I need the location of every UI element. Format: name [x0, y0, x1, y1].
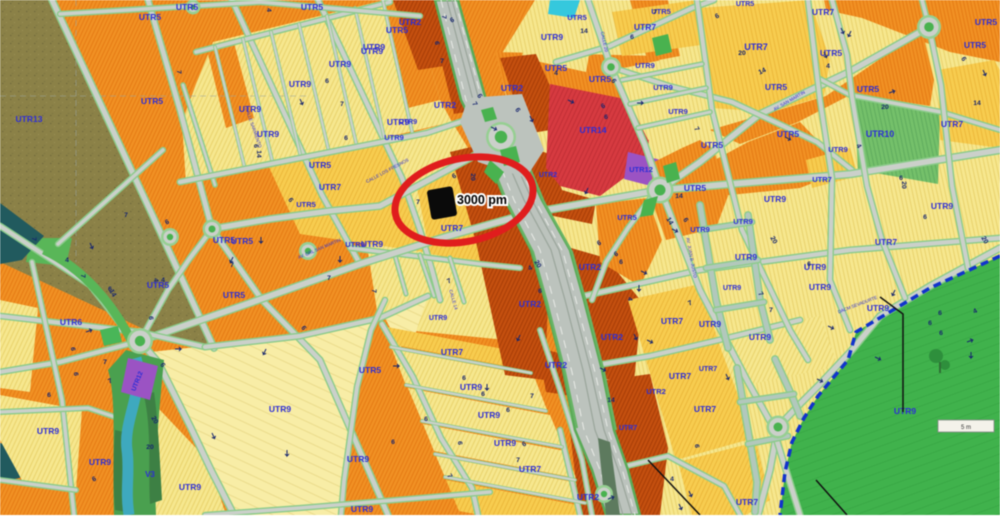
svg-text:UTR9: UTR9: [635, 61, 655, 70]
svg-text:7: 7: [440, 58, 444, 65]
svg-text:6: 6: [391, 439, 395, 446]
svg-text:UTR9: UTR9: [931, 201, 953, 211]
svg-text:UTR2: UTR2: [519, 299, 541, 309]
svg-text:UTR9: UTR9: [289, 79, 311, 89]
svg-text:20: 20: [900, 181, 907, 189]
svg-text:UTR9: UTR9: [269, 404, 291, 414]
svg-text:7: 7: [30, 237, 37, 241]
svg-text:UTR7: UTR7: [319, 182, 341, 192]
svg-text:UTR7: UTR7: [812, 175, 832, 184]
svg-text:UTR5: UTR5: [567, 13, 587, 22]
svg-text:UTR13: UTR13: [16, 114, 43, 124]
svg-text:6: 6: [147, 316, 154, 320]
svg-text:6: 6: [506, 407, 510, 414]
svg-text:UTR7: UTR7: [941, 119, 963, 129]
svg-text:6: 6: [939, 330, 943, 337]
svg-text:7: 7: [769, 307, 773, 314]
svg-text:20: 20: [881, 104, 889, 111]
svg-text:UTR9: UTR9: [653, 83, 673, 92]
svg-text:UTR7: UTR7: [736, 497, 758, 507]
svg-text:UTR5: UTR5: [684, 183, 706, 193]
svg-text:7: 7: [103, 359, 107, 366]
svg-text:UTR9: UTR9: [733, 217, 753, 226]
svg-text:UTR7: UTR7: [875, 237, 897, 247]
svg-text:UTR7: UTR7: [619, 425, 637, 432]
svg-text:4: 4: [626, 297, 633, 301]
svg-text:7: 7: [516, 457, 520, 464]
svg-text:UTR2: UTR2: [501, 83, 523, 93]
svg-text:14: 14: [255, 150, 262, 158]
svg-text:UTR6: UTR6: [60, 317, 82, 327]
svg-text:5 m: 5 m: [961, 425, 971, 431]
svg-text:4: 4: [554, 70, 558, 77]
svg-text:7: 7: [175, 70, 182, 74]
svg-text:UTR9: UTR9: [179, 482, 201, 492]
svg-text:UTR14: UTR14: [580, 125, 607, 135]
svg-text:20: 20: [469, 173, 476, 181]
svg-text:UTR7: UTR7: [441, 223, 463, 233]
svg-text:UTR2: UTR2: [539, 172, 557, 179]
svg-text:UTR2: UTR2: [545, 360, 567, 370]
svg-text:UTR5: UTR5: [359, 365, 381, 375]
svg-text:4: 4: [670, 476, 674, 483]
svg-text:UTR5: UTR5: [765, 82, 787, 92]
svg-text:14: 14: [580, 28, 588, 35]
svg-text:UTR5: UTR5: [231, 236, 253, 246]
svg-text:UTR9: UTR9: [429, 315, 447, 322]
svg-text:6: 6: [538, 288, 542, 295]
svg-text:UTR9: UTR9: [894, 406, 916, 416]
svg-text:UTR9: UTR9: [699, 319, 721, 329]
svg-text:UTR5: UTR5: [964, 40, 986, 50]
svg-text:UTR7: UTR7: [699, 366, 717, 373]
svg-text:7: 7: [79, 274, 86, 278]
svg-text:UTR5: UTR5: [857, 84, 879, 94]
svg-text:6: 6: [325, 78, 329, 85]
svg-text:UTR9: UTR9: [749, 332, 771, 342]
svg-text:UTR7: UTR7: [519, 464, 541, 474]
svg-text:UTR9: UTR9: [735, 252, 757, 262]
svg-text:UTR9: UTR9: [37, 426, 59, 436]
svg-text:7: 7: [653, 9, 657, 16]
svg-text:4: 4: [265, 8, 272, 12]
svg-text:UTR9: UTR9: [460, 382, 482, 392]
svg-text:14: 14: [607, 397, 615, 404]
svg-text:UTR9: UTR9: [867, 303, 889, 313]
svg-text:7: 7: [440, 15, 447, 19]
svg-text:UTR7: UTR7: [634, 22, 656, 32]
svg-text:6: 6: [807, 261, 811, 268]
svg-text:UTR9: UTR9: [399, 119, 417, 126]
svg-text:6: 6: [69, 347, 76, 351]
svg-text:UTR9: UTR9: [345, 240, 365, 249]
svg-text:UTR5: UTR5: [975, 17, 997, 27]
svg-text:UTR5: UTR5: [139, 12, 161, 22]
svg-text:UTR9: UTR9: [809, 282, 831, 292]
svg-text:UTR7: UTR7: [441, 347, 463, 357]
svg-text:UTR5: UTR5: [617, 213, 637, 222]
svg-text:UTR9: UTR9: [690, 225, 710, 234]
svg-text:6: 6: [604, 114, 608, 121]
svg-text:6: 6: [481, 391, 485, 398]
svg-text:UTR7: UTR7: [812, 7, 834, 17]
svg-text:UTR9: UTR9: [384, 133, 404, 142]
svg-text:6: 6: [47, 392, 51, 399]
svg-text:4: 4: [826, 63, 830, 70]
svg-text:4: 4: [161, 277, 165, 284]
svg-text:UTR5: UTR5: [176, 2, 198, 12]
svg-text:UTR9: UTR9: [828, 145, 848, 154]
svg-text:UTR5: UTR5: [141, 96, 163, 106]
svg-text:UTR10: UTR10: [866, 129, 895, 139]
svg-text:6: 6: [433, 41, 440, 45]
svg-text:UTR5: UTR5: [589, 74, 611, 84]
svg-text:UTR9: UTR9: [361, 46, 383, 56]
svg-text:UTR7: UTR7: [694, 404, 716, 414]
svg-text:UTR9: UTR9: [541, 32, 563, 42]
svg-text:6: 6: [72, 372, 79, 376]
svg-text:UTR9: UTR9: [351, 504, 373, 514]
svg-text:7: 7: [370, 289, 377, 293]
svg-text:14: 14: [973, 100, 981, 107]
svg-text:4: 4: [65, 257, 69, 264]
svg-text:UTR9: UTR9: [478, 410, 500, 420]
svg-text:V3: V3: [145, 470, 155, 479]
svg-text:UTR5: UTR5: [296, 200, 316, 209]
svg-text:UTR9: UTR9: [668, 107, 688, 116]
svg-text:UTR9: UTR9: [764, 194, 786, 204]
svg-text:7: 7: [327, 275, 331, 282]
svg-text:6: 6: [619, 259, 623, 266]
svg-text:UTR5: UTR5: [223, 290, 245, 300]
svg-text:UTR7: UTR7: [661, 316, 683, 326]
svg-text:UTR7: UTR7: [669, 371, 691, 381]
svg-text:UTR12: UTR12: [629, 165, 653, 174]
svg-text:6: 6: [456, 441, 463, 445]
svg-text:4: 4: [152, 278, 159, 282]
svg-text:UTR5: UTR5: [701, 140, 723, 150]
svg-text:UTR9: UTR9: [723, 285, 741, 292]
svg-text:UTR9: UTR9: [329, 59, 351, 69]
svg-text:UTR5: UTR5: [309, 160, 331, 170]
svg-text:7: 7: [416, 199, 420, 206]
svg-text:6: 6: [108, 286, 112, 293]
svg-text:6: 6: [344, 135, 348, 142]
svg-text:UTR2: UTR2: [646, 387, 666, 396]
svg-text:UTR2: UTR2: [579, 262, 601, 272]
svg-text:UTR5: UTR5: [777, 129, 799, 139]
svg-text:UTR5: UTR5: [301, 2, 323, 12]
svg-text:UTR9: UTR9: [89, 457, 111, 467]
svg-text:UTR2: UTR2: [601, 332, 623, 342]
svg-text:UTR2: UTR2: [399, 17, 421, 27]
svg-text:6: 6: [424, 416, 428, 423]
svg-text:20: 20: [146, 444, 154, 451]
svg-text:7: 7: [230, 262, 234, 269]
svg-text:20: 20: [738, 50, 746, 57]
svg-text:UTR5: UTR5: [736, 1, 754, 8]
svg-text:UTR9: UTR9: [347, 454, 369, 464]
svg-text:7: 7: [340, 101, 344, 108]
svg-text:6: 6: [938, 310, 942, 317]
svg-text:14: 14: [675, 193, 683, 200]
svg-text:UTR7: UTR7: [744, 42, 768, 52]
svg-text:6: 6: [923, 214, 927, 221]
svg-text:6: 6: [693, 444, 700, 448]
svg-text:UTR9: UTR9: [494, 438, 516, 448]
svg-text:7: 7: [124, 212, 128, 219]
svg-text:7: 7: [530, 393, 534, 400]
svg-text:6: 6: [462, 375, 466, 382]
svg-text:6: 6: [630, 34, 634, 41]
svg-text:UTR2: UTR2: [434, 100, 456, 110]
svg-text:6: 6: [928, 320, 932, 327]
svg-text:UTR5: UTR5: [820, 48, 842, 58]
svg-text:3000 pm: 3000 pm: [457, 193, 507, 207]
svg-text:UTR2: UTR2: [577, 492, 599, 502]
